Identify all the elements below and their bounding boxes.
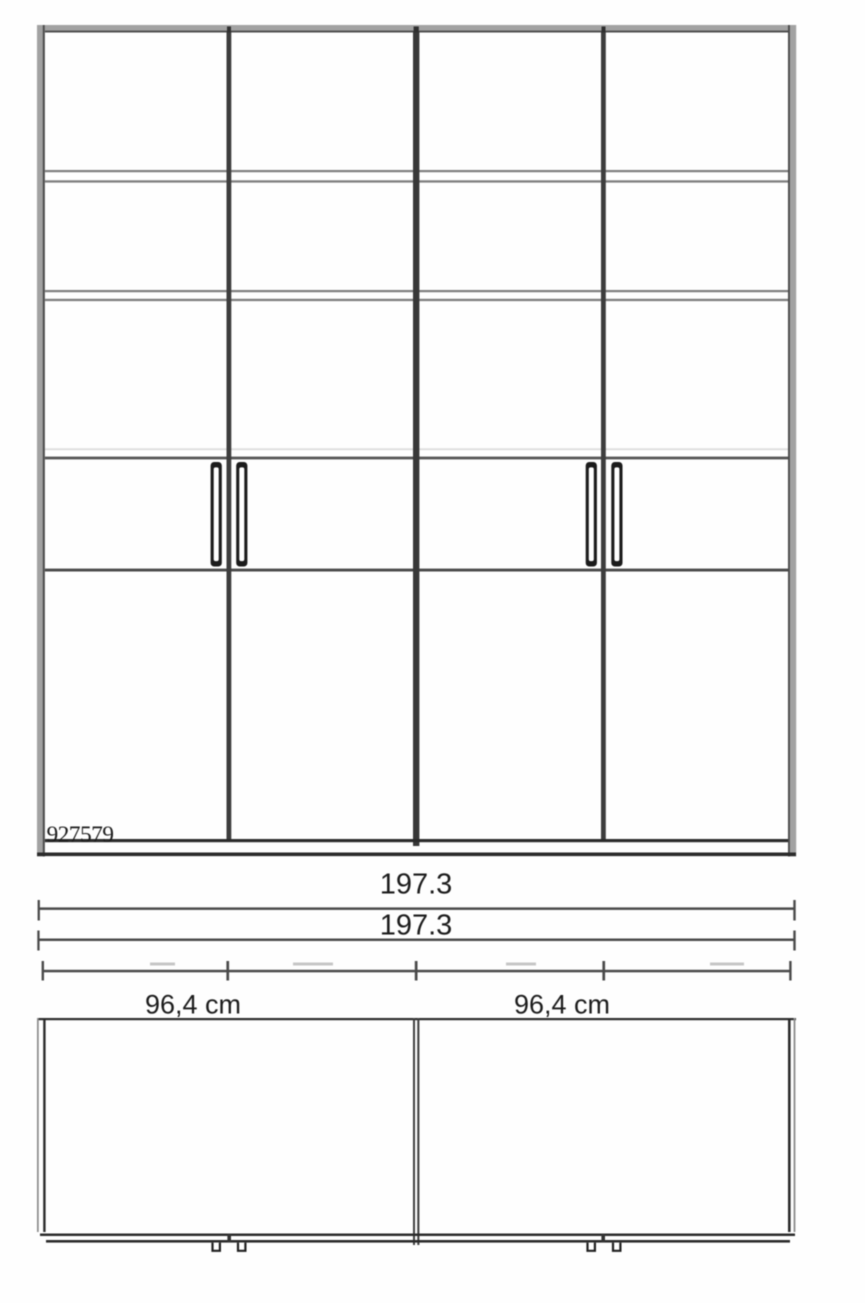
svg-text:927579: 927579 bbox=[47, 822, 114, 848]
svg-text:197.3: 197.3 bbox=[380, 910, 453, 942]
svg-text:96,4 cm: 96,4 cm bbox=[145, 990, 241, 1020]
svg-text:96,4 cm: 96,4 cm bbox=[514, 990, 610, 1020]
svg-text:197.3: 197.3 bbox=[380, 869, 453, 901]
